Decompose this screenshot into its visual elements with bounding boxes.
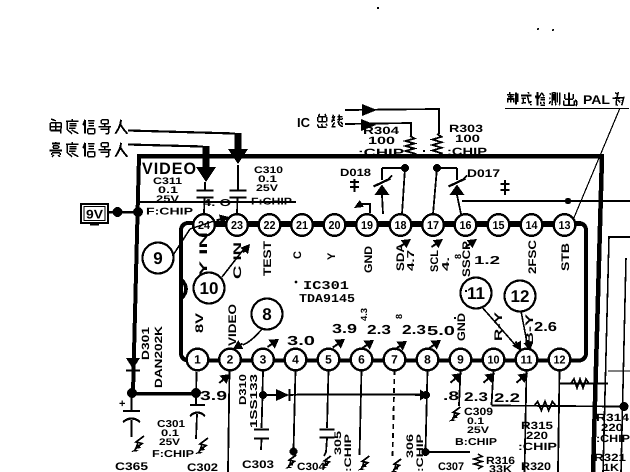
svg-text:25V: 25V <box>156 194 180 205</box>
svg-text::CHIP: :CHIP <box>343 433 354 472</box>
svg-text:PAL: PAL <box>583 93 610 107</box>
svg-text:F:CHIP: F:CHIP <box>251 197 293 208</box>
svg-text:3.9: 3.9 <box>200 388 227 403</box>
svg-text:17: 17 <box>427 220 439 232</box>
svg-text:C302: C302 <box>187 462 218 472</box>
svg-text:33K: 33K <box>489 464 512 472</box>
svg-text:DAN202K: DAN202K <box>153 325 165 388</box>
svg-text:C: C <box>292 251 304 259</box>
svg-text:22: 22 <box>264 220 276 232</box>
svg-text:F:CHIP: F:CHIP <box>152 449 194 460</box>
svg-text:8V: 8V <box>194 312 206 333</box>
svg-text:2.3: 2.3 <box>367 322 391 337</box>
svg-text:SCL: SCL <box>429 250 441 272</box>
svg-text:2FSC: 2FSC <box>527 240 539 274</box>
svg-text:+: + <box>119 398 125 410</box>
svg-text:2.3: 2.3 <box>464 390 488 404</box>
svg-text:TDA9145: TDA9145 <box>299 292 355 306</box>
svg-text:10: 10 <box>200 279 219 298</box>
svg-text:12: 12 <box>511 287 530 306</box>
svg-text:B:CHIP: B:CHIP <box>455 437 497 448</box>
svg-text:11: 11 <box>467 284 485 303</box>
svg-text:7: 7 <box>391 353 398 367</box>
svg-text:3: 3 <box>260 353 267 367</box>
svg-text:6: 6 <box>358 353 365 367</box>
svg-text:13: 13 <box>559 220 571 232</box>
svg-text:1.2: 1.2 <box>474 255 500 267</box>
svg-text:2.6: 2.6 <box>534 319 557 334</box>
svg-text:2.3: 2.3 <box>402 322 426 337</box>
svg-text:12: 12 <box>554 355 566 367</box>
svg-text:21: 21 <box>296 220 309 232</box>
svg-text:3.0: 3.0 <box>287 333 315 348</box>
svg-text:4: 4 <box>292 353 299 367</box>
svg-text:Y: Y <box>326 252 338 260</box>
svg-text:Y IN: Y IN <box>198 232 210 276</box>
svg-text::CHIP: :CHIP <box>596 433 630 445</box>
svg-text:9: 9 <box>457 353 464 367</box>
svg-text:25V: 25V <box>256 183 279 194</box>
svg-text:GND: GND <box>363 246 375 273</box>
svg-text:8: 8 <box>453 254 463 259</box>
svg-text:D017: D017 <box>467 168 500 180</box>
svg-text:5.0: 5.0 <box>427 323 455 338</box>
svg-text:VIDEO: VIDEO <box>227 303 239 346</box>
svg-text:10: 10 <box>488 355 500 367</box>
svg-text:1SS133: 1SS133 <box>249 373 260 428</box>
svg-text:D310: D310 <box>238 373 249 405</box>
svg-text:20: 20 <box>329 220 341 232</box>
svg-text:STB: STB <box>560 243 572 271</box>
svg-text:4. O: 4. O <box>203 198 231 209</box>
svg-text:IC: IC <box>297 115 311 130</box>
svg-text:19: 19 <box>361 220 373 232</box>
svg-text:.8: .8 <box>443 389 459 403</box>
svg-text:2: 2 <box>227 353 234 367</box>
svg-text:8: 8 <box>394 314 404 319</box>
svg-text:8: 8 <box>424 353 431 367</box>
svg-text:8: 8 <box>262 305 271 324</box>
svg-text:C307: C307 <box>438 461 464 472</box>
svg-text:R-Y: R-Y <box>493 311 505 341</box>
svg-text:C303: C303 <box>242 459 274 471</box>
svg-text:25V: 25V <box>467 425 490 436</box>
svg-text:11: 11 <box>521 355 534 367</box>
svg-text:15: 15 <box>493 220 506 232</box>
svg-text:3.9: 3.9 <box>332 321 357 336</box>
svg-text:100: 100 <box>455 133 480 145</box>
svg-text:1K: 1K <box>603 462 619 472</box>
svg-text:23: 23 <box>231 220 243 232</box>
svg-text:C304: C304 <box>297 461 325 472</box>
svg-text:IC301: IC301 <box>303 279 349 293</box>
svg-text:9V: 9V <box>86 208 104 222</box>
svg-text:18: 18 <box>395 220 408 232</box>
svg-text:TEST: TEST <box>262 241 274 276</box>
svg-text:GND: GND <box>456 313 468 341</box>
svg-text:D301: D301 <box>140 327 152 360</box>
svg-text::CHIP: :CHIP <box>518 441 557 453</box>
svg-text:25V: 25V <box>159 437 181 448</box>
svg-text:14: 14 <box>526 220 539 232</box>
svg-text:D018: D018 <box>340 167 371 179</box>
svg-text:100: 100 <box>368 135 395 147</box>
svg-text:4.: 4. <box>441 257 452 271</box>
svg-text:16: 16 <box>460 220 472 232</box>
svg-text:4.3: 4.3 <box>359 308 369 321</box>
svg-text:2.2: 2.2 <box>494 391 520 405</box>
svg-text:4.7: 4.7 <box>406 249 417 271</box>
svg-text:C365: C365 <box>115 461 148 472</box>
svg-text:5: 5 <box>325 353 332 367</box>
svg-text:1: 1 <box>194 353 201 367</box>
svg-text:F:CHIP: F:CHIP <box>146 207 194 218</box>
svg-text:9: 9 <box>153 249 162 268</box>
